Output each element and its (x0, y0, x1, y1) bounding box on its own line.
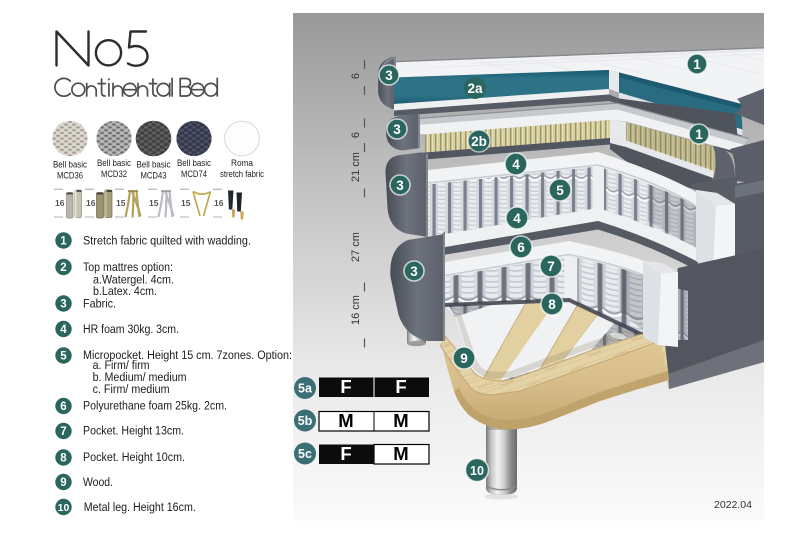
svg-text:27 cm: 27 cm (350, 232, 362, 262)
svg-text:MCD32: MCD32 (101, 169, 127, 179)
svg-text:Roma: Roma (231, 158, 254, 168)
svg-text:1: 1 (695, 127, 703, 142)
svg-text:Wood.: Wood. (83, 475, 113, 489)
svg-text:Pocket. Height 10cm.: Pocket. Height 10cm. (83, 450, 185, 464)
svg-text:3: 3 (410, 264, 418, 279)
svg-text:2b: 2b (471, 134, 487, 149)
svg-text:4: 4 (512, 157, 520, 172)
svg-text:Polyurethane foam 25kg. 2cm.: Polyurethane foam 25kg. 2cm. (83, 399, 227, 413)
svg-text:8: 8 (548, 297, 556, 312)
svg-text:5: 5 (60, 351, 67, 363)
svg-text:M: M (393, 410, 408, 431)
svg-text:Metal leg. Height 16cm.: Metal leg. Height 16cm. (84, 500, 196, 514)
svg-text:15: 15 (149, 198, 159, 208)
svg-text:4: 4 (60, 324, 67, 336)
svg-text:6: 6 (517, 240, 525, 255)
svg-text:10: 10 (58, 502, 70, 514)
svg-text:2a: 2a (467, 81, 483, 96)
svg-text:16: 16 (86, 198, 96, 208)
svg-text:Bell basic: Bell basic (97, 158, 131, 168)
svg-text:8: 8 (60, 453, 67, 465)
svg-text:16: 16 (55, 198, 65, 208)
svg-text:1: 1 (60, 236, 67, 248)
svg-text:5: 5 (556, 183, 564, 198)
svg-text:3: 3 (396, 178, 404, 193)
svg-text:Stretch fabric quilted with wa: Stretch fabric quilted with wadding. (83, 234, 251, 248)
svg-text:16 cm: 16 cm (350, 295, 362, 325)
svg-text:4: 4 (513, 211, 521, 226)
svg-text:MCD43: MCD43 (141, 171, 167, 181)
svg-text:9: 9 (460, 351, 468, 366)
svg-text:6: 6 (60, 401, 66, 413)
svg-text:2: 2 (60, 262, 66, 274)
svg-text:stretch fabric: stretch fabric (220, 169, 264, 179)
svg-text:Bell basic: Bell basic (177, 158, 211, 168)
svg-text:Bell basic: Bell basic (53, 160, 87, 170)
svg-text:c. Firm/ medium: c. Firm/ medium (93, 382, 170, 396)
svg-text:Fabric.: Fabric. (83, 296, 116, 310)
svg-text:7: 7 (547, 259, 555, 274)
svg-text:1: 1 (693, 57, 701, 72)
svg-text:15: 15 (181, 198, 191, 208)
svg-text:2022.04: 2022.04 (714, 499, 752, 511)
svg-text:MCD36: MCD36 (57, 171, 83, 181)
svg-text:Bell basic: Bell basic (137, 160, 171, 170)
svg-text:HR foam 30kg. 3cm.: HR foam 30kg. 3cm. (83, 322, 179, 336)
svg-text:MCD74: MCD74 (181, 169, 207, 179)
svg-text:21 cm: 21 cm (350, 152, 362, 182)
svg-text:M: M (338, 410, 353, 431)
svg-text:6: 6 (350, 132, 362, 138)
svg-text:7: 7 (60, 426, 66, 438)
svg-text:5a: 5a (298, 382, 313, 396)
svg-text:M: M (393, 443, 408, 464)
svg-text:16: 16 (214, 198, 224, 208)
svg-text:F: F (340, 376, 351, 397)
svg-text:5b: 5b (298, 414, 313, 428)
svg-text:3: 3 (60, 299, 66, 311)
svg-text:3: 3 (393, 122, 401, 137)
svg-text:10: 10 (470, 464, 484, 478)
svg-text:F: F (395, 376, 406, 397)
svg-text:5c: 5c (298, 447, 312, 461)
svg-text:15: 15 (116, 198, 126, 208)
svg-text:Pocket. Height 13cm.: Pocket. Height 13cm. (83, 424, 184, 438)
svg-text:3: 3 (385, 68, 393, 83)
svg-text:6: 6 (350, 73, 362, 79)
svg-text:F: F (340, 443, 351, 464)
svg-text:9: 9 (60, 477, 66, 489)
